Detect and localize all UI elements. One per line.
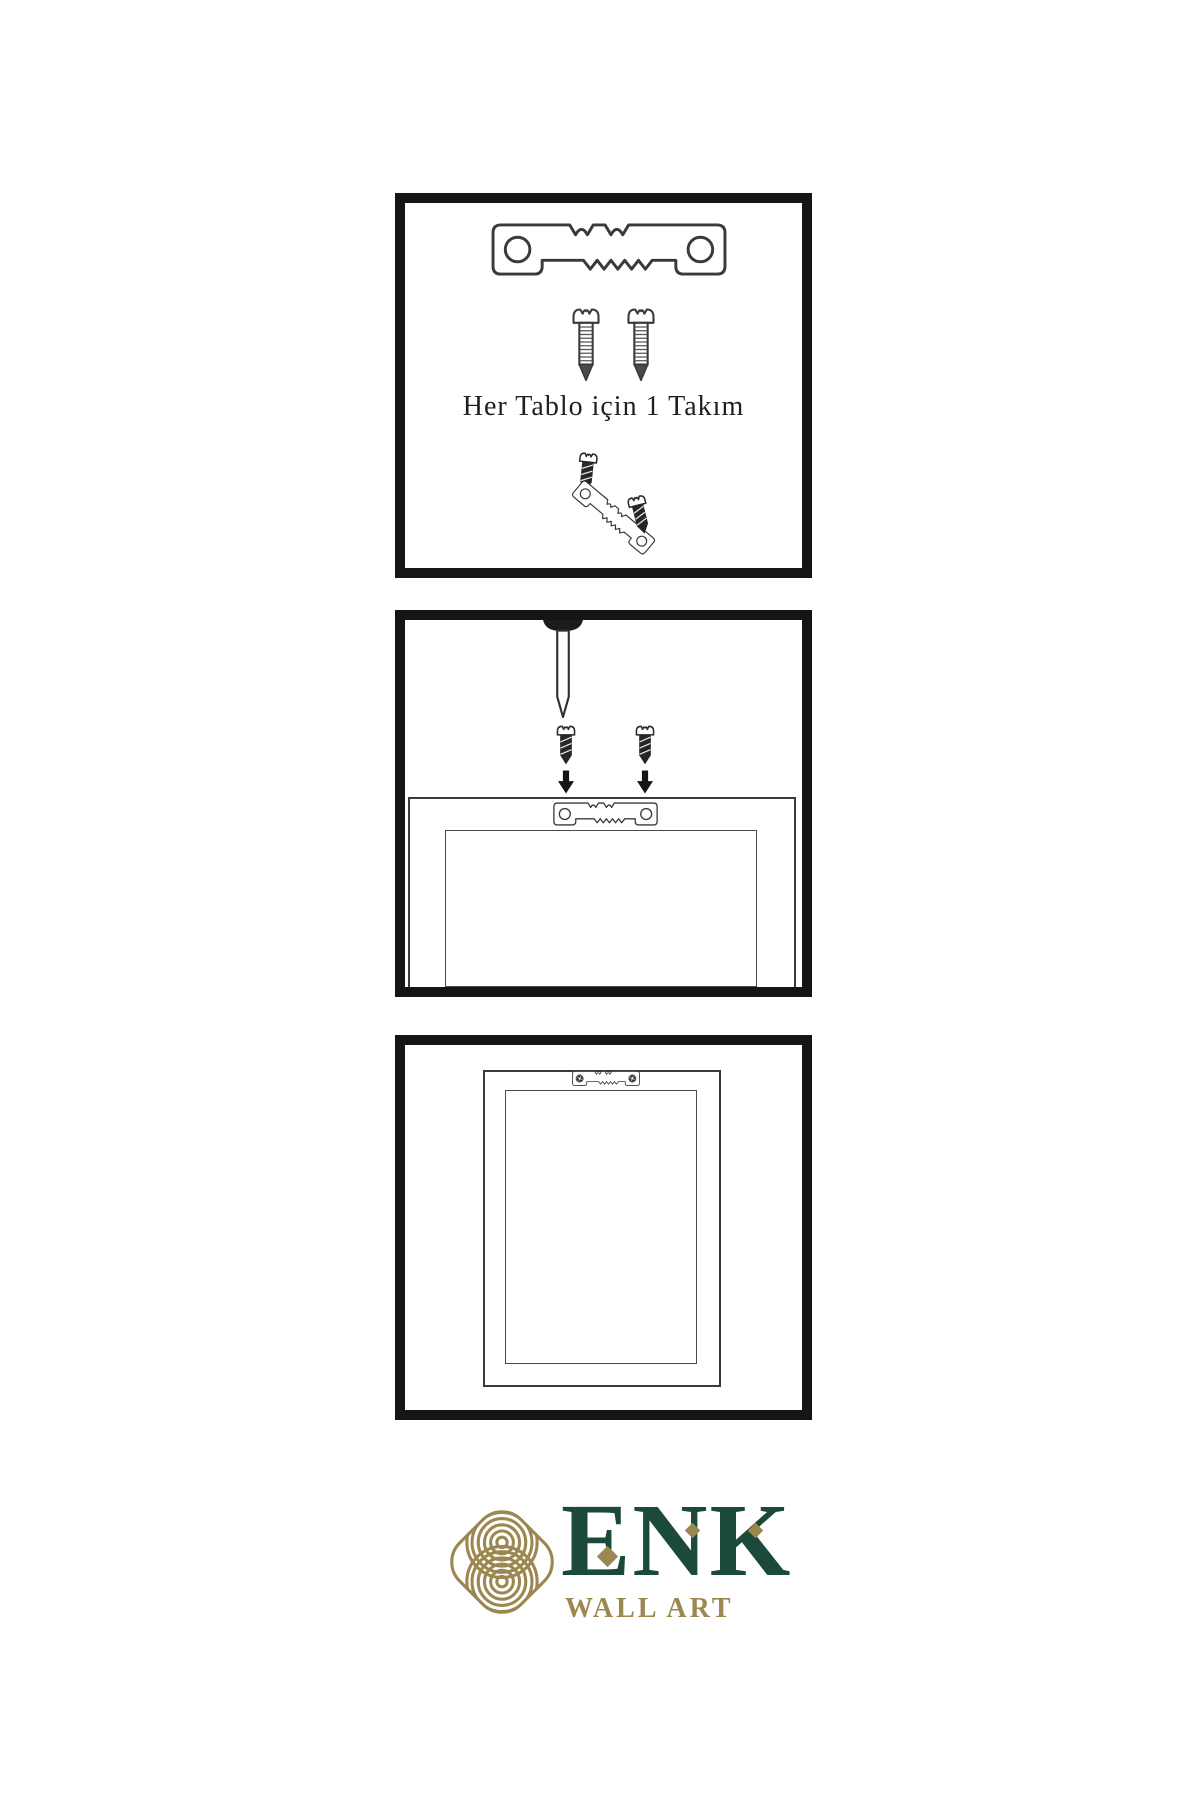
screws-into-tilted-hanger-icon bbox=[525, 443, 705, 563]
brand-tagline: WALL ART bbox=[565, 1595, 805, 1623]
interlaced-knot-icon bbox=[440, 1497, 564, 1627]
down-arrow-icon bbox=[558, 770, 574, 794]
panel-hardware-set: Her Tablo için 1 Takım bbox=[395, 193, 812, 578]
dark-screw-icon bbox=[634, 724, 656, 766]
dark-screw-icon bbox=[555, 724, 577, 766]
sawtooth-hanger-icon bbox=[553, 801, 658, 827]
panel-wall-install bbox=[395, 610, 812, 997]
brand-name: ENK bbox=[561, 1489, 801, 1593]
set-caption: Her Tablo için 1 Takım bbox=[405, 391, 802, 423]
frame-back-inner-edge bbox=[445, 830, 757, 987]
screw-icon bbox=[626, 306, 656, 383]
nail-icon bbox=[539, 618, 587, 720]
hanging-frame-inner-edge bbox=[505, 1090, 697, 1364]
mounted-sawtooth-hanger-icon bbox=[572, 1070, 640, 1087]
down-arrow-icon bbox=[637, 770, 653, 794]
panel-hanging-result bbox=[395, 1035, 812, 1420]
sawtooth-hanger-icon bbox=[491, 221, 727, 278]
screw-icon bbox=[571, 306, 601, 383]
instruction-sheet: Her Tablo için 1 Takım ENK WALL ART bbox=[0, 0, 1200, 1800]
